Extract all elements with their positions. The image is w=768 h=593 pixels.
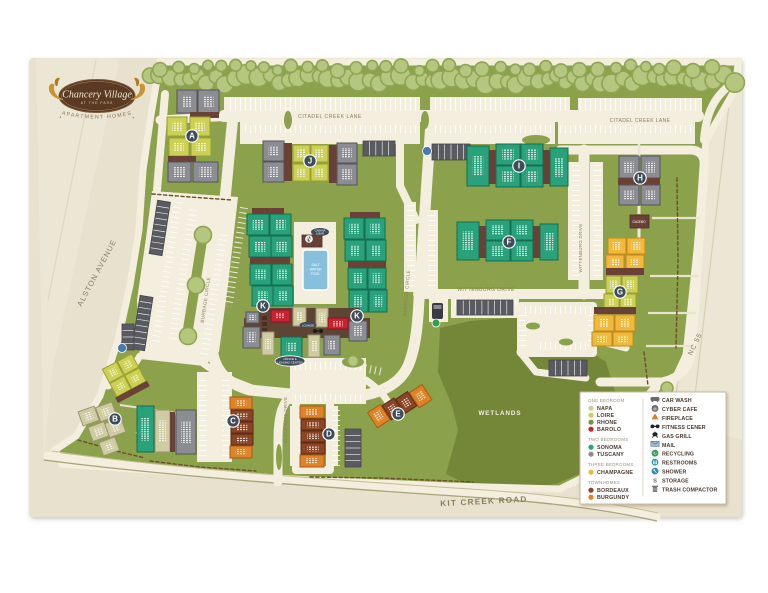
svg-text:@: @ <box>653 406 657 411</box>
svg-text:CITADEL CREEK LANE: CITADEL CREEK LANE <box>298 114 362 120</box>
svg-text:↻: ↻ <box>653 451 657 456</box>
svg-text:CYBER CAFE: CYBER CAFE <box>662 407 698 413</box>
svg-text:TOWNHOMES: TOWNHOMES <box>588 480 620 485</box>
svg-text:K: K <box>260 302 266 311</box>
svg-text:NAPA: NAPA <box>597 406 612 412</box>
svg-text:SALT: SALT <box>311 263 319 267</box>
svg-text:BLACK GATE DRIVE: BLACK GATE DRIVE <box>283 397 288 444</box>
svg-text:LOUNGE: LOUNGE <box>302 324 314 328</box>
svg-text:CITADEL CREEK LANE: CITADEL CREEK LANE <box>610 118 671 124</box>
svg-text:SONOMA: SONOMA <box>597 445 622 451</box>
svg-text:LOIRE: LOIRE <box>597 413 614 419</box>
svg-text:POOL: POOL <box>311 272 321 276</box>
svg-text:LEASING CENTER: LEASING CENTER <box>277 361 302 365</box>
svg-text:A: A <box>189 132 195 141</box>
svg-text:TRASH COMPACTOR: TRASH COMPACTOR <box>662 488 718 494</box>
svg-text:RESTROOMS: RESTROOMS <box>662 461 697 467</box>
svg-text:C: C <box>230 417 236 426</box>
svg-text:BURGUNDY: BURGUNDY <box>597 495 629 501</box>
svg-text:ONE BEDROOM: ONE BEDROOM <box>588 398 625 403</box>
svg-text:STORAGE: STORAGE <box>662 479 689 485</box>
svg-text:K: K <box>354 312 360 321</box>
svg-text:E: E <box>395 410 401 419</box>
svg-text:AT THE PARK: AT THE PARK <box>81 101 114 105</box>
svg-text:BORDEAUX: BORDEAUX <box>597 488 629 494</box>
svg-text:F: F <box>507 238 512 247</box>
svg-text:TUSCANY: TUSCANY <box>597 452 624 458</box>
svg-text:WITTENBURG DRIVE: WITTENBURG DRIVE <box>578 224 583 273</box>
svg-text:CHAMPAGNE: CHAMPAGNE <box>597 470 633 476</box>
svg-text:FITNESS CENER: FITNESS CENER <box>662 425 706 431</box>
svg-text:& BAR: & BAR <box>316 232 324 236</box>
svg-text:J: J <box>308 157 312 166</box>
svg-text:GAS GRILL: GAS GRILL <box>662 434 692 440</box>
svg-text:TWO BEDROOMS: TWO BEDROOMS <box>588 437 628 442</box>
svg-text:BAROLO: BAROLO <box>597 427 621 433</box>
svg-text:I: I <box>518 162 520 171</box>
svg-text:Chancery Village: Chancery Village <box>62 90 132 101</box>
svg-text:RHONE: RHONE <box>597 420 617 426</box>
svg-text:CAR WASH: CAR WASH <box>662 398 692 404</box>
svg-text:GAZEBO: GAZEBO <box>632 220 646 224</box>
svg-text:WITTENBURG DRIVE: WITTENBURG DRIVE <box>457 287 515 293</box>
svg-text:WETLANDS: WETLANDS <box>478 410 521 417</box>
svg-text:SHOWER: SHOWER <box>662 470 687 476</box>
svg-text:H: H <box>637 174 643 183</box>
svg-text:THREE BEDROOMS: THREE BEDROOMS <box>588 462 634 467</box>
svg-text:G: G <box>617 288 623 297</box>
svg-text:N: N <box>306 235 312 244</box>
svg-text:S: S <box>653 479 657 485</box>
svg-text:FIREPLACE: FIREPLACE <box>662 416 693 422</box>
svg-text:WATER: WATER <box>310 268 322 272</box>
svg-text:MAIL: MAIL <box>662 443 676 449</box>
svg-text:D: D <box>326 430 332 439</box>
svg-text:B: B <box>112 415 118 424</box>
svg-text:RECYCLING: RECYCLING <box>662 452 694 458</box>
